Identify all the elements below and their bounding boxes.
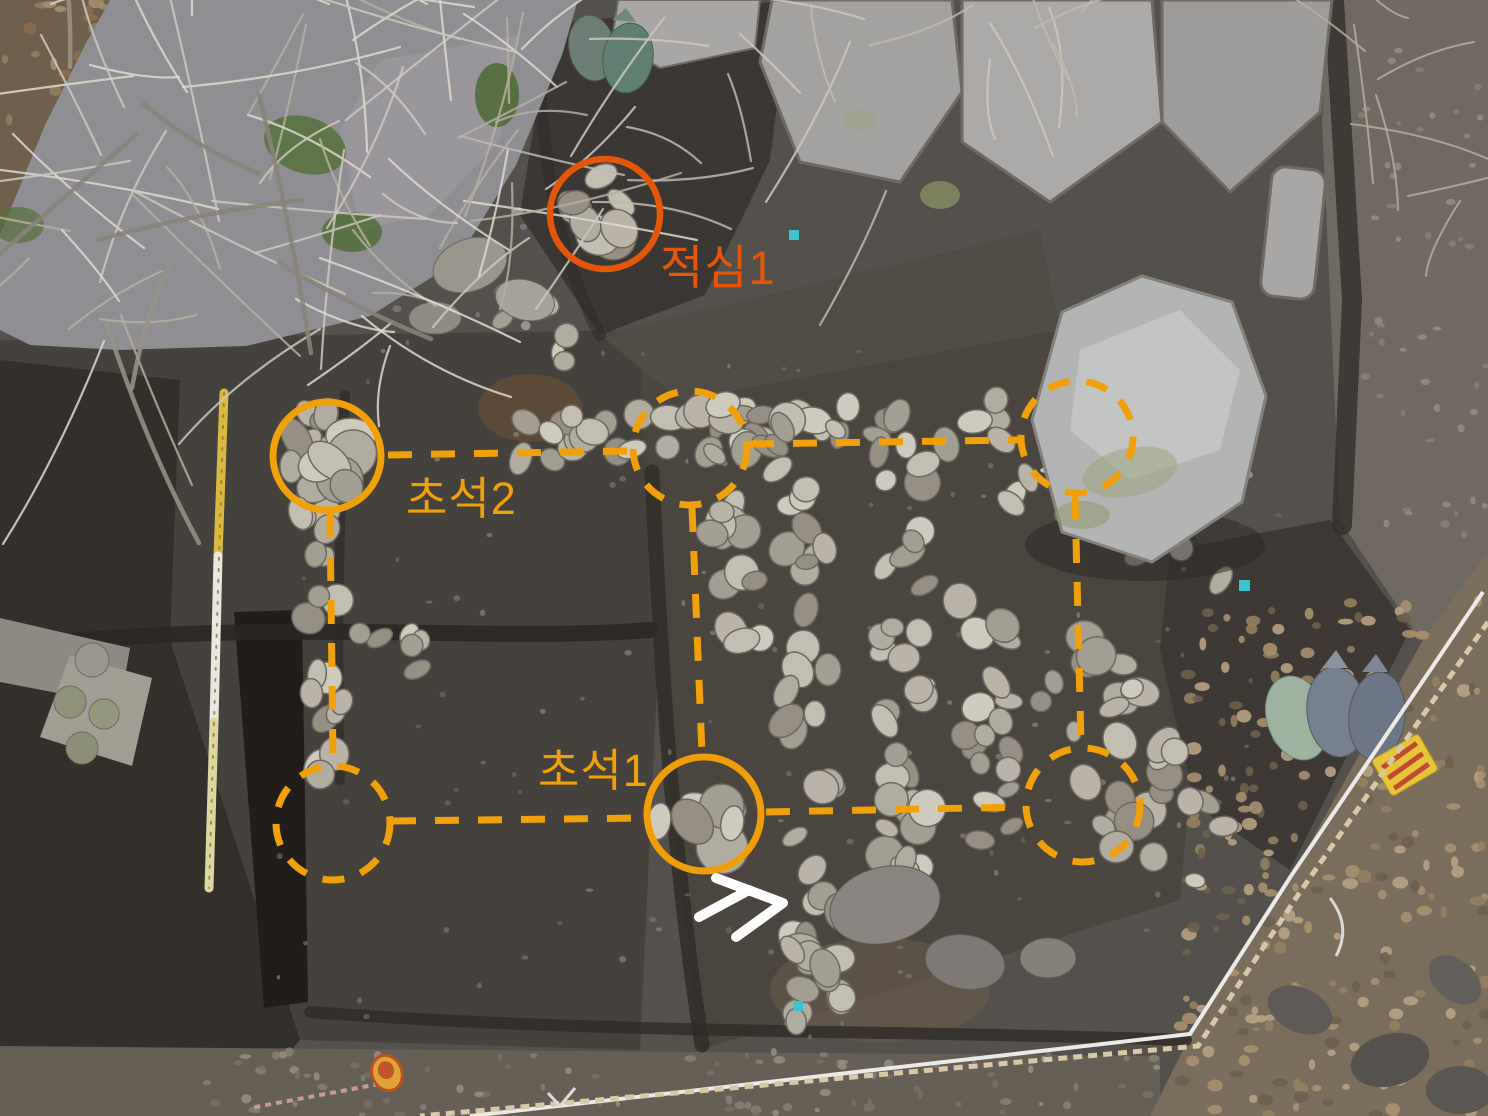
label-choseok-2: 초석2 [406, 473, 517, 524]
excavation-aerial-photo: 적심1 초석2 초석1 [0, 0, 1488, 1116]
label-choseok-1: 초석1 [538, 745, 649, 796]
screenshot-root: 적심1 초석2 초석1 [0, 0, 1488, 1116]
label-jeoksim-1: 적심1 [660, 241, 776, 294]
